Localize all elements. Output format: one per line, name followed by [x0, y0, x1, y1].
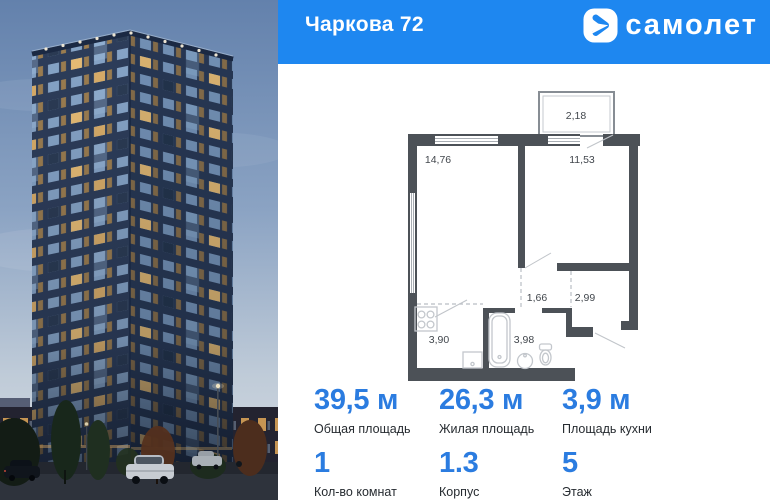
stat-value: 5	[562, 449, 592, 478]
entry-area-label: 2,99	[575, 292, 596, 304]
samolet-logo[interactable]: самолет	[583, 8, 758, 43]
bedroom-area-label: 11,53	[569, 154, 595, 166]
detail-building-number: 1.3 Корпус	[439, 449, 479, 499]
kitchen-area-label: 3,90	[429, 334, 450, 346]
detail-rooms-count: 1 Кол-во комнат	[314, 449, 397, 499]
brand-name: самолет	[625, 11, 758, 40]
stat-label: Площадь кухни	[562, 422, 652, 436]
bathtub-icon	[489, 313, 510, 367]
page-title: Чаркова 72	[305, 13, 424, 37]
building-photo	[0, 0, 278, 500]
stat-living-area: 26,3 м Жилая площадь	[439, 386, 534, 436]
zone-dashes	[417, 268, 571, 307]
stat-value: 26,3 м	[439, 386, 534, 415]
stat-value: 39,5 м	[314, 386, 411, 415]
stat-value: 1.3	[439, 449, 479, 478]
hallway-area-label: 1,66	[527, 292, 548, 304]
floor-plan: 2,18 14,76 11,53 1,66 2,99 3,90 3,98	[400, 85, 650, 385]
washer-icon	[463, 352, 482, 368]
balcony-area-label: 2,18	[566, 110, 587, 122]
stat-value: 1	[314, 449, 397, 478]
sink-icon	[518, 354, 533, 369]
stat-total-area: 39,5 м Общая площадь	[314, 386, 411, 436]
stat-label: Этаж	[562, 485, 592, 499]
stat-label: Общая площадь	[314, 422, 411, 436]
stat-label: Кол-во комнат	[314, 485, 397, 499]
stat-value: 3,9 м	[562, 386, 652, 415]
stat-label: Корпус	[439, 485, 479, 499]
stat-label: Жилая площадь	[439, 422, 534, 436]
title-bar: Чаркова 72 самолет	[278, 0, 770, 64]
bathroom-area-label: 3,98	[514, 334, 535, 346]
stat-kitchen-area: 3,9 м Площадь кухни	[562, 386, 652, 436]
stove-icon	[415, 307, 437, 331]
detail-floor-number: 5 Этаж	[562, 449, 592, 499]
listing-card[interactable]: Чаркова 72 самолет	[0, 0, 770, 500]
door-swing-lines	[435, 135, 625, 348]
living-area-label: 14,76	[425, 154, 451, 166]
toilet-icon	[540, 344, 552, 365]
samolet-arrow-icon	[583, 8, 618, 43]
